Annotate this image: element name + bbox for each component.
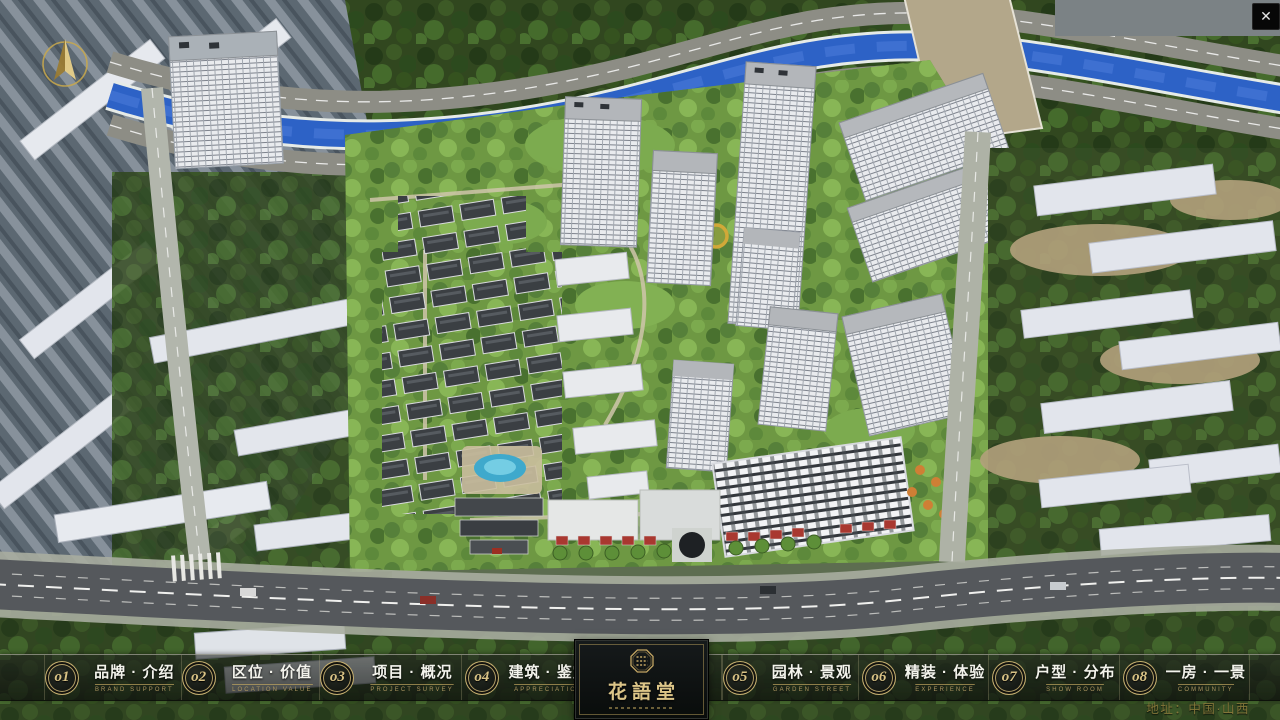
nav-caption-2: LOCATION VALUE xyxy=(232,684,312,693)
nav-caption-8: COMMUNITY xyxy=(1178,684,1234,693)
nav-item-garden-landscape[interactable]: o5 园林 · 景观 GARDEN STREET xyxy=(722,655,858,700)
nav-title-1: 品牌 · 介绍 xyxy=(94,661,174,682)
compass-icon xyxy=(36,34,94,92)
nav-item-location-value[interactable]: o2 区位 · 价值 LOCATION VALUE xyxy=(181,655,320,700)
nav-item-floorplans[interactable]: o7 户型 · 分布 SHOW ROOM xyxy=(988,655,1118,700)
nav-caption-5: GARDEN STREET xyxy=(773,684,851,693)
nav-badge-7: o7 xyxy=(992,661,1026,695)
nav-title-6: 精装 · 体验 xyxy=(905,661,985,682)
project-logo-title: 花語堂 xyxy=(608,677,680,704)
nav-item-interior-experience[interactable]: o6 精装 · 体验 EXPERIENCE xyxy=(858,655,988,700)
close-icon: ✕ xyxy=(1260,8,1272,25)
nav-item-architecture[interactable]: o4 建筑 · 鉴赏 APPRECIATION xyxy=(461,655,591,700)
aerial-map-view[interactable] xyxy=(0,0,1280,720)
nav-title-3: 项目 · 概况 xyxy=(372,661,452,682)
nav-item-project-survey[interactable]: o3 项目 · 概况 PROJECT SURVEY xyxy=(319,655,461,700)
address-text: 地址：中国·山西 xyxy=(1146,698,1250,717)
nav-spacer-right xyxy=(1249,655,1280,700)
nav-caption-1: BRAND SUPPORT xyxy=(95,684,174,693)
nav-badge-8: o8 xyxy=(1123,661,1157,695)
nav-spacer-left xyxy=(0,655,44,700)
nav-badge-6: o6 xyxy=(862,661,896,695)
nav-title-2: 区位 · 价值 xyxy=(232,661,312,682)
nav-title-7: 户型 · 分布 xyxy=(1035,661,1115,682)
nav-badge-3: o3 xyxy=(320,661,354,695)
nav-caption-4: APPRECIATION xyxy=(514,684,583,693)
nav-item-brand-intro[interactable]: o1 品牌 · 介绍 BRAND SUPPORT xyxy=(44,655,181,700)
nav-title-5: 园林 · 景观 xyxy=(772,661,852,682)
nav-caption-3: PROJECT SURVEY xyxy=(371,684,454,693)
nav-title-8: 一房 · 一景 xyxy=(1166,661,1246,682)
nav-badge-4: o4 xyxy=(465,661,499,695)
nav-badge-1: o1 xyxy=(45,661,79,695)
right-district xyxy=(980,148,1280,568)
nav-caption-6: EXPERIENCE xyxy=(915,684,975,693)
nav-badge-5: o5 xyxy=(723,661,757,695)
nav-item-room-views[interactable]: o8 一房 · 一景 COMMUNITY xyxy=(1119,655,1249,700)
riverside-tower xyxy=(169,31,284,168)
presentation-window: ✕ o1 品牌 · 介绍 BRAND SUPPORT o2 区位 · 价值 LO… xyxy=(0,0,1280,720)
close-button[interactable]: ✕ xyxy=(1252,3,1280,30)
logo-seal-icon xyxy=(627,646,657,676)
logo-panel[interactable]: 花語堂 xyxy=(575,640,708,719)
nav-badge-2: o2 xyxy=(182,661,216,695)
logo-tagline xyxy=(609,707,675,709)
nav-caption-7: SHOW ROOM xyxy=(1047,684,1105,693)
